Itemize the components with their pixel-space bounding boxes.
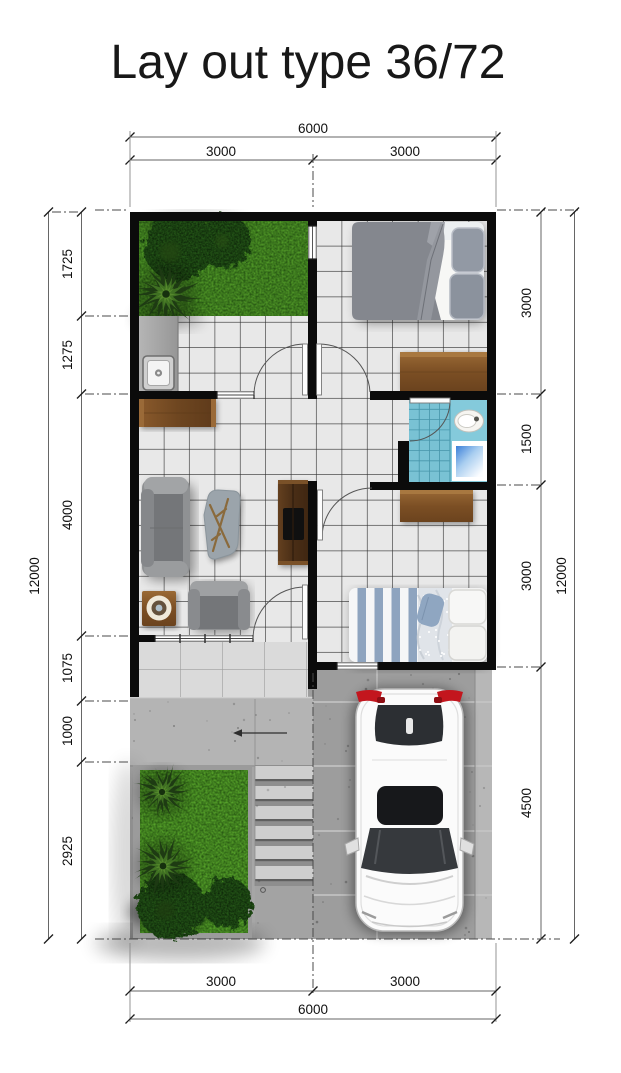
svg-text:3000: 3000 [206,144,236,159]
svg-text:1000: 1000 [60,716,75,746]
svg-text:3000: 3000 [519,561,534,591]
svg-text:1500: 1500 [519,424,534,454]
svg-text:Lay out type 36/72: Lay out type 36/72 [111,36,506,89]
svg-text:3000: 3000 [206,974,236,989]
svg-text:1275: 1275 [60,340,75,370]
svg-text:4500: 4500 [519,788,534,818]
svg-text:6000: 6000 [298,121,328,136]
svg-text:2925: 2925 [60,836,75,866]
svg-text:3000: 3000 [390,144,420,159]
svg-text:3000: 3000 [519,288,534,318]
svg-text:4000: 4000 [60,500,75,530]
svg-text:1725: 1725 [60,249,75,279]
svg-text:6000: 6000 [298,1002,328,1017]
svg-text:12000: 12000 [27,557,42,595]
svg-text:1075: 1075 [60,653,75,683]
svg-text:12000: 12000 [554,557,569,595]
svg-text:3000: 3000 [390,974,420,989]
